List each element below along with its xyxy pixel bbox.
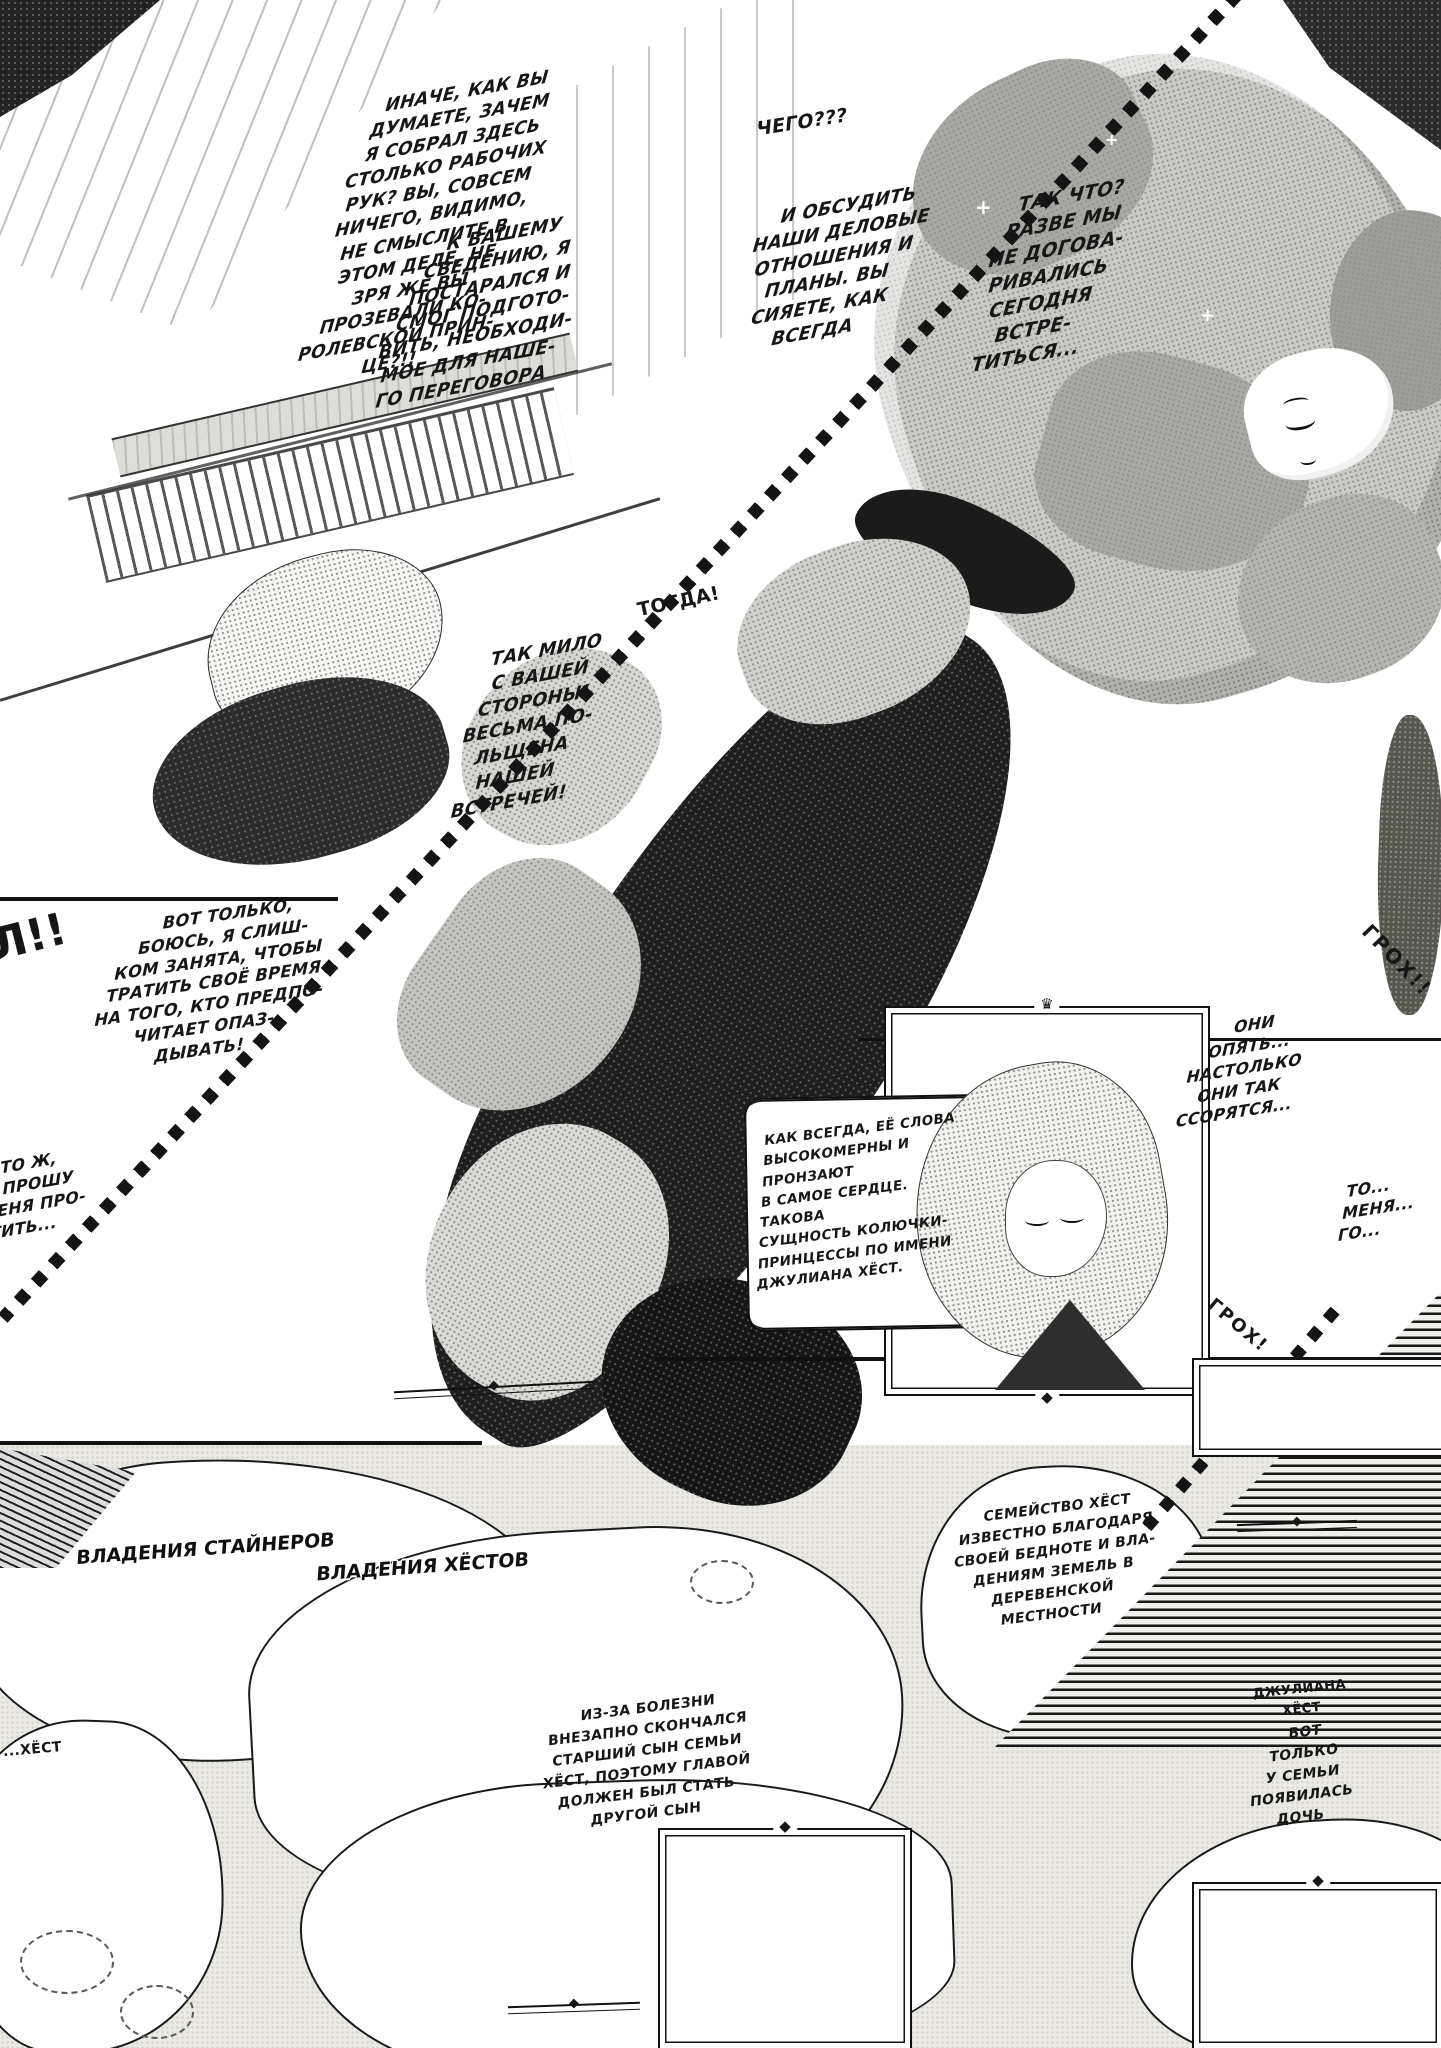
diamond-ornament-icon: ◆ <box>1035 1390 1059 1405</box>
closed-eye <box>1060 1212 1084 1223</box>
sfx-left-edge: Л!! <box>0 903 72 971</box>
diamond-ornament-icon: ◆ <box>1306 1873 1330 1888</box>
panel-border <box>0 1441 482 1445</box>
sparkle-icon: + <box>1200 305 1215 326</box>
map-caption-frame-empty <box>1192 1358 1441 1457</box>
diamond-ornament-icon: ◆ <box>773 1819 797 1834</box>
narration-text-juliana: КАК ВСЕГДА, ЕЁ СЛОВА ВЫСОКОМЕРНЫ И ПРОНЗ… <box>756 1105 975 1295</box>
caption-daughter-note: ВОТ ТОЛЬКО У СЕМЬИ ПОЯВИЛАСЬ ДОЧЬ <box>1233 1714 1373 1837</box>
speech-fragment-right-edge: ТО... МЕНЯ... ГО... <box>1336 1163 1441 1246</box>
diamond-ornament-icon: ◆ <box>569 1997 579 2010</box>
diamond-ornament-icon: ◆ <box>488 1379 499 1393</box>
bottom-center-frame: ◆ <box>658 1828 912 2048</box>
silver-figure-shoulders <box>132 647 469 898</box>
bush-mark <box>690 1560 754 1604</box>
caption-illness-story: ИЗ-ЗА БОЛЕЗНИ ВНЕЗАПНО СКОНЧАЛСЯ СТАРШИЙ… <box>537 1685 758 1839</box>
crown-ornament-icon: ♛ <box>1034 997 1059 1012</box>
diamond-ornament-icon: ◆ <box>1292 1515 1302 1528</box>
bottom-right-frame: ◆ <box>1192 1882 1441 2048</box>
closed-eye <box>1025 1215 1049 1226</box>
sfx-crash-bottom: ГРОХ! <box>1204 1294 1273 1356</box>
caption-hoest-family: СЕМЕЙСТВО ХЁСТ ИЗВЕСТНО БЛАГОДАРЯ СВОЕЙ … <box>949 1486 1159 1639</box>
speech-bubble-vot-tolko: ВОТ ТОЛЬКО, БОЮСЬ, Я СЛИШ- КОМ ЗАНЯТА, Ч… <box>75 886 351 1079</box>
bush-mark <box>20 1930 114 1994</box>
bush-mark <box>120 1985 194 2039</box>
speech-bubble-chto-zh: ЧТО Ж, Я ПРОШУ МЕНЯ ПРО- СТИТЬ... <box>0 1137 117 1247</box>
manga-page: + + + ♛ ◆ ◆ ◆ ◆ <box>0 0 1441 2048</box>
